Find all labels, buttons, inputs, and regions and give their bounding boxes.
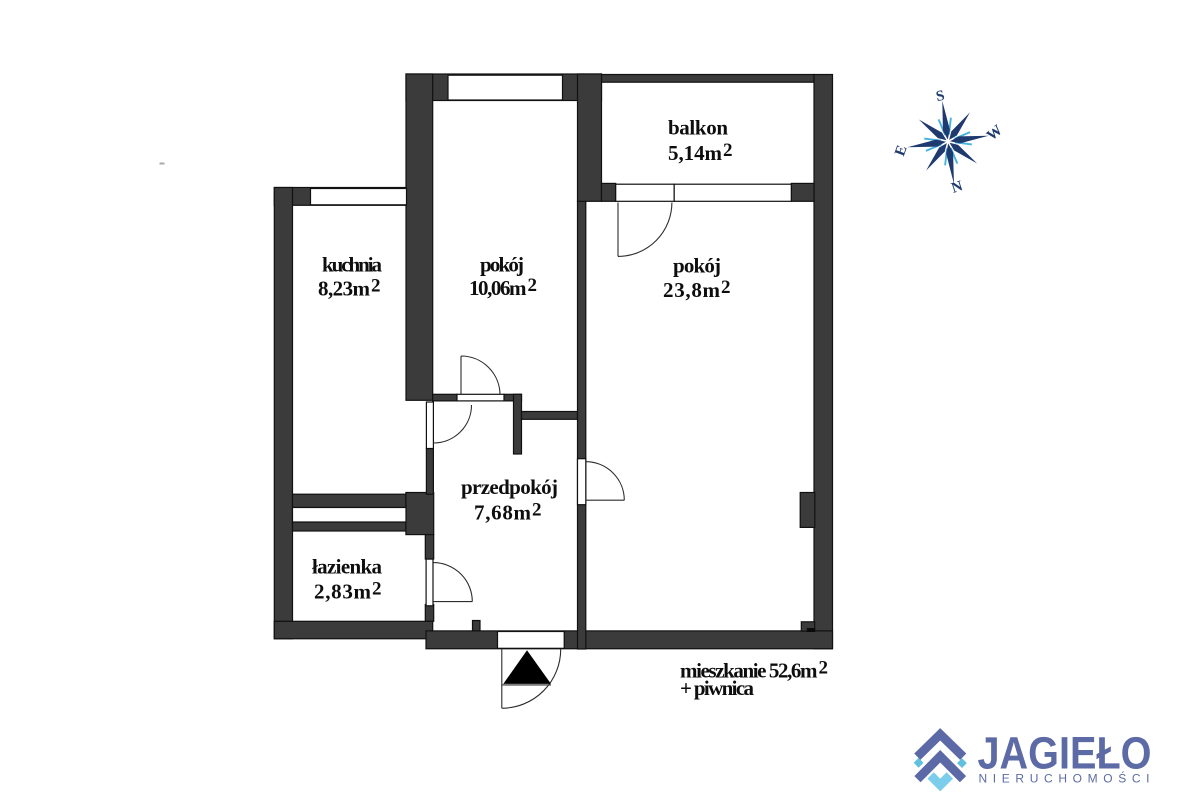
svg-text:2: 2 bbox=[372, 579, 382, 600]
svg-text:+ piwnica: + piwnica bbox=[680, 676, 755, 700]
svg-text:pokój: pokój bbox=[480, 253, 524, 277]
svg-text:10,06m: 10,06m bbox=[469, 276, 527, 300]
svg-text:2: 2 bbox=[721, 277, 731, 298]
svg-text:S: S bbox=[935, 88, 946, 105]
svg-text:pokój: pokój bbox=[673, 254, 721, 278]
svg-text:2: 2 bbox=[371, 276, 381, 297]
svg-text:kuchnia: kuchnia bbox=[322, 253, 383, 277]
svg-text:łazienka: łazienka bbox=[312, 555, 383, 579]
svg-text:2: 2 bbox=[723, 140, 733, 161]
svg-text:8,23m: 8,23m bbox=[318, 277, 371, 301]
svg-text:2,83m: 2,83m bbox=[314, 580, 372, 604]
svg-text:balkon: balkon bbox=[668, 116, 728, 140]
svg-text:przedpokój: przedpokój bbox=[461, 475, 558, 499]
svg-text:23,8m: 23,8m bbox=[663, 278, 721, 302]
svg-text:N: N bbox=[950, 178, 965, 197]
svg-text:NIERUCHOMOŚCI: NIERUCHOMOŚCI bbox=[979, 771, 1150, 786]
svg-text:2: 2 bbox=[532, 500, 542, 521]
svg-text:2: 2 bbox=[528, 275, 538, 296]
svg-text:W: W bbox=[984, 122, 1006, 144]
svg-text:E: E bbox=[892, 143, 910, 158]
svg-text:7,68m: 7,68m bbox=[474, 501, 532, 525]
svg-text:5,14m: 5,14m bbox=[668, 141, 723, 165]
svg-text:2: 2 bbox=[819, 658, 829, 679]
